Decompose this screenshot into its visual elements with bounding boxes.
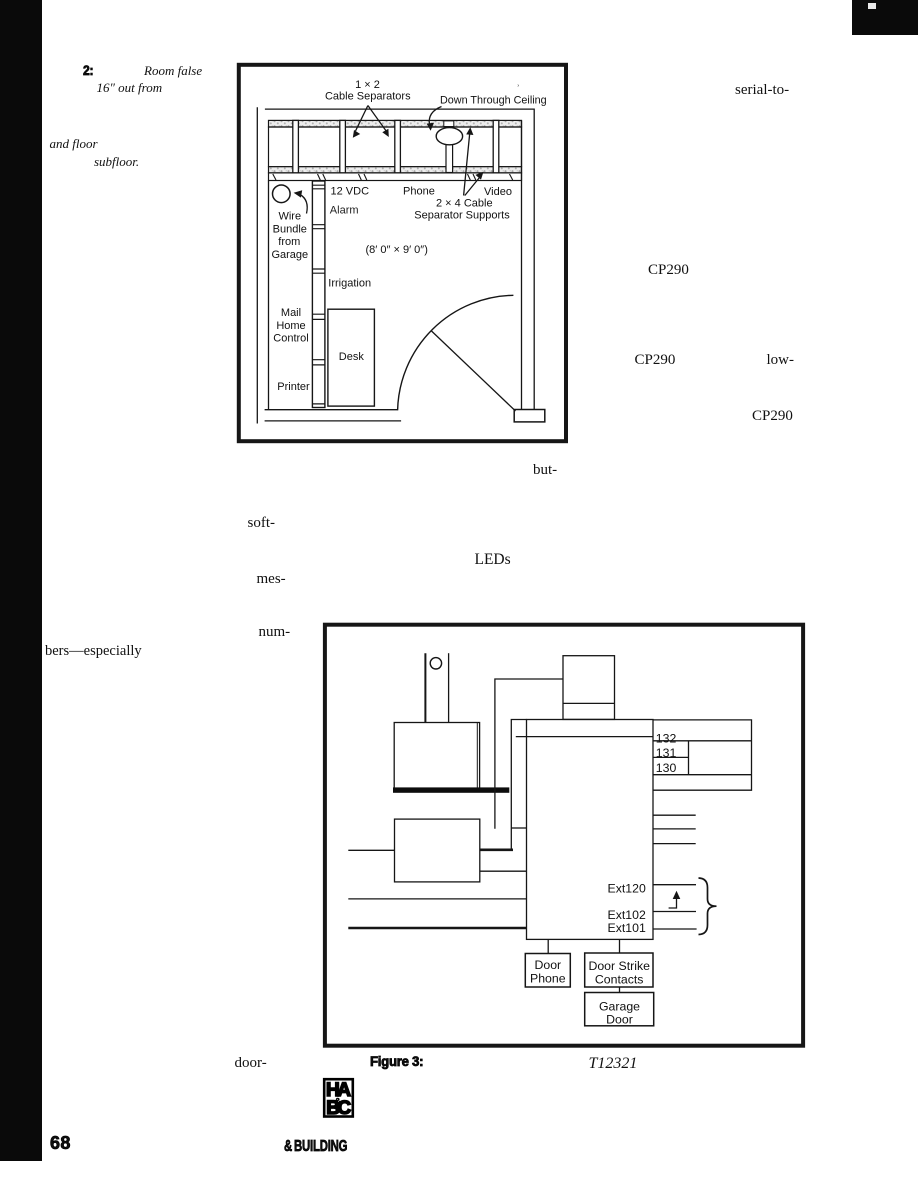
svg-text:Irrigation: Irrigation (328, 277, 371, 289)
svg-text:Alarm: Alarm (330, 204, 359, 216)
svg-text:Home: Home (276, 320, 305, 332)
svg-text:Ext101: Ext101 (608, 921, 646, 935)
svg-text:Desk: Desk (339, 351, 365, 363)
svg-text:Door: Door (606, 1013, 633, 1027)
svg-text:Cable Separators: Cable Separators (325, 91, 411, 103)
svg-text:Phone: Phone (530, 971, 566, 985)
svg-text:Garage: Garage (599, 1000, 640, 1014)
svg-text:Video: Video (484, 186, 512, 198)
svg-text:2 × 4 Cable: 2 × 4 Cable (436, 198, 493, 210)
svg-text:ʾ: ʾ (517, 83, 520, 95)
svg-text:&: & (335, 1097, 342, 1107)
svg-text:Ext120: Ext120 (608, 882, 646, 896)
svg-text:Mail: Mail (281, 307, 301, 319)
svg-text:Door: Door (534, 958, 561, 972)
svg-text:Door Strike: Door Strike (588, 959, 650, 973)
svg-text:Bundle: Bundle (273, 223, 307, 235)
svg-text:Phone: Phone (403, 186, 435, 198)
svg-text:Garage: Garage (271, 249, 308, 261)
svg-text:131: 131 (656, 746, 677, 760)
svg-text:Contacts: Contacts (595, 972, 644, 986)
svg-text:12 VDC: 12 VDC (331, 186, 370, 198)
svg-text:1 × 2: 1 × 2 (355, 79, 380, 91)
svg-text:Wire: Wire (278, 211, 301, 223)
svg-text:from: from (278, 236, 300, 248)
svg-text:Printer: Printer (277, 381, 310, 393)
svg-text:Separator Supports: Separator Supports (414, 209, 510, 221)
svg-text:Ext102: Ext102 (608, 908, 646, 922)
svg-text:Down Through Ceiling: Down Through Ceiling (440, 95, 547, 107)
svg-text:132: 132 (656, 732, 677, 746)
svg-text:Control: Control (273, 332, 308, 344)
svg-text:130: 130 (656, 761, 677, 775)
svg-text:(8′ 0″ × 9′ 0″): (8′ 0″ × 9′ 0″) (366, 244, 428, 256)
